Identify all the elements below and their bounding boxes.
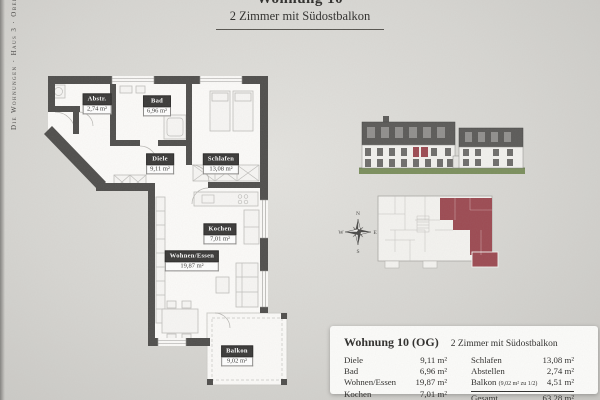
brochure-page: Die Wohnungen · Haus 3 · Obergeschoss Wo… [0, 0, 600, 400]
balkon-half-note: (9,02 m² zu 1/2) [499, 381, 538, 387]
area-row: Bad6,96 m² [344, 366, 447, 377]
area-table-header: Wohnung 10 (OG) 2 Zimmer mit Südostbalko… [344, 333, 584, 351]
page-subtitle: 2 Zimmer mit Südostbalkon [150, 9, 450, 24]
area-table: Wohnung 10 (OG) 2 Zimmer mit Südostbalko… [330, 326, 598, 394]
area-row: Diele9,11 m² [344, 355, 447, 366]
room-label-wohnen-essen: Wohnen/Essen 19,87 m² [165, 250, 219, 271]
title-divider [216, 29, 384, 30]
area-row-total: Gesamt63,28 m² [471, 391, 574, 400]
area-table-title: Wohnung 10 (OG) [344, 335, 439, 349]
level-plan [335, 190, 505, 275]
page-header: Wohnung 10 2 Zimmer mit Südostbalkon [150, 0, 450, 30]
page-edge-shadow [0, 0, 5, 400]
page-title: Wohnung 10 [150, 0, 450, 8]
area-row: Abstellen2,74 m² [471, 366, 574, 377]
building-elevation [355, 112, 530, 178]
room-label-diele: Diele 9,11 m² [146, 153, 174, 174]
area-table-right-column: Schlafen13,08 m² Abstellen2,74 m² Balkon… [471, 355, 574, 400]
area-table-subtitle: 2 Zimmer mit Südostbalkon [451, 339, 558, 349]
room-label-balkon: Balkon 9,02 m² [221, 345, 253, 366]
room-label-abstellraum: Abstr. 2,74 m² [83, 93, 112, 114]
area-row: Schlafen13,08 m² [471, 355, 574, 366]
room-label-schlafen: Schlafen 13,08 m² [203, 153, 239, 174]
area-row: Kochen7,01 m² [344, 389, 447, 400]
area-table-left-column: Diele9,11 m² Bad6,96 m² Wohnen/Essen19,8… [344, 355, 447, 400]
chapter-label: Die Wohnungen · Haus 3 · Obergeschoss [10, 0, 18, 130]
room-label-kochen: Kochen 7,01 m² [203, 223, 236, 244]
area-row: Wohnen/Essen19,87 m² [344, 377, 447, 388]
area-row-balkon: Balkon (9,02 m² zu 1/2) 4,51 m² [471, 377, 574, 389]
room-label-bad: Bad 6,96 m² [143, 95, 171, 116]
